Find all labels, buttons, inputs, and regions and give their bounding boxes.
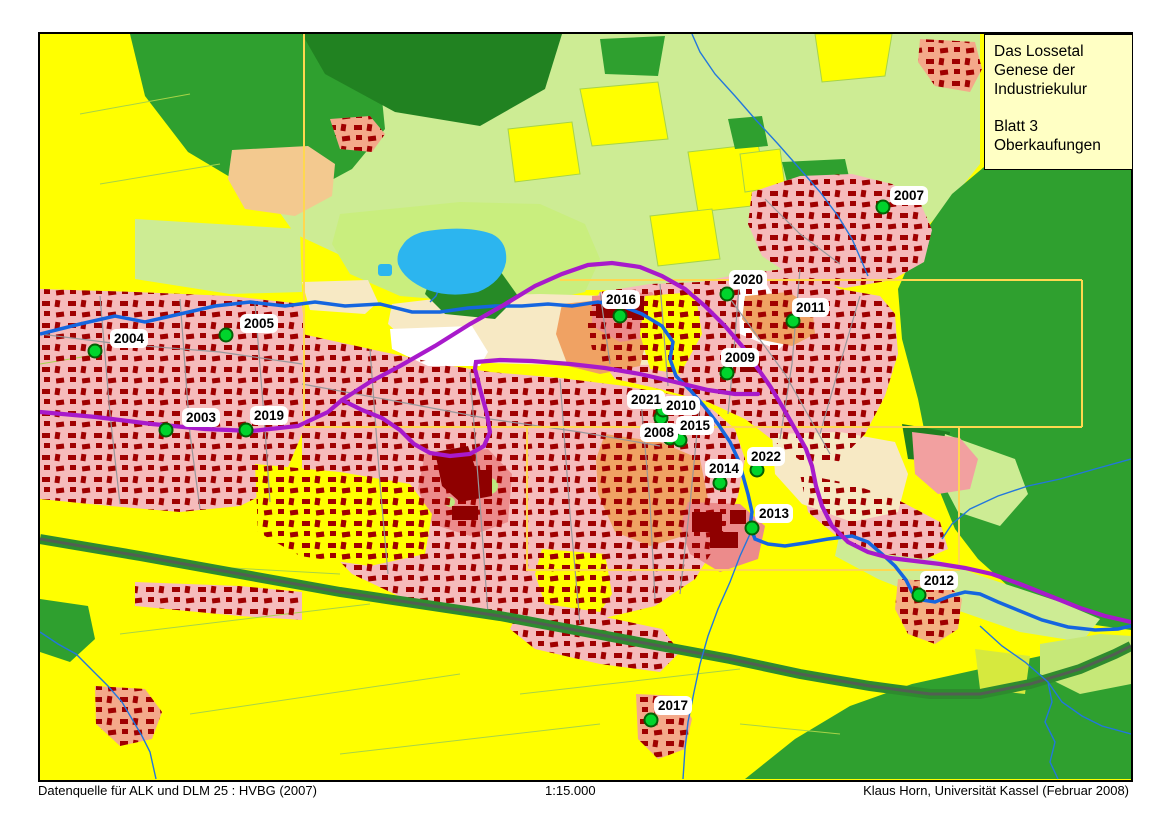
map-subtitle-1: Genese der <box>994 61 1126 80</box>
map-marker-label-2014: 2014 <box>705 459 743 478</box>
map-marker-label-2009: 2009 <box>721 348 759 367</box>
map-marker-label-2012: 2012 <box>920 571 958 590</box>
map-marker-label-2004: 2004 <box>110 329 148 348</box>
map-title: Das Lossetal <box>994 42 1126 61</box>
map-marker-dot-2005[interactable] <box>219 328 234 343</box>
page: 2003200420052007200820092010201120122013… <box>0 0 1169 827</box>
title-spacer <box>994 99 1126 117</box>
map-marker-dot-2009[interactable] <box>720 366 735 381</box>
map-marker-label-2022: 2022 <box>747 447 785 466</box>
map-subtitle-2: Industriekulur <box>994 80 1126 99</box>
sheet-name: Oberkaufungen <box>994 136 1126 155</box>
map-marker-dot-2019[interactable] <box>239 423 254 438</box>
map-marker-dot-2016[interactable] <box>613 309 628 324</box>
map-marker-dot-2004[interactable] <box>88 344 103 359</box>
map-marker-label-2016: 2016 <box>602 290 640 309</box>
map-marker-dot-2017[interactable] <box>644 713 659 728</box>
data-source-note: Datenquelle für ALK und DLM 25 : HVBG (2… <box>38 783 317 798</box>
map-marker-dot-2013[interactable] <box>745 521 760 536</box>
map-marker-label-2007: 2007 <box>890 186 928 205</box>
map-marker-dot-2020[interactable] <box>720 287 735 302</box>
map-marker-label-2003: 2003 <box>182 408 220 427</box>
map-marker-label-2021: 2021 <box>627 390 665 409</box>
map-canvas <box>40 34 1131 780</box>
map-title-box: Das Lossetal Genese der Industriekulur B… <box>984 34 1133 170</box>
map-marker-label-2019: 2019 <box>250 406 288 425</box>
map-marker-label-2015: 2015 <box>676 416 714 435</box>
map-marker-label-2013: 2013 <box>755 504 793 523</box>
map-marker-label-2005: 2005 <box>240 314 278 333</box>
map-marker-label-2010: 2010 <box>662 396 700 415</box>
map-scale: 1:15.000 <box>545 783 596 798</box>
map-marker-label-2008: 2008 <box>640 423 678 442</box>
map-footer: Datenquelle für ALK und DLM 25 : HVBG (2… <box>0 783 1169 803</box>
author-credit: Klaus Horn, Universität Kassel (Februar … <box>863 783 1129 798</box>
map-marker-label-2017: 2017 <box>654 696 692 715</box>
map-marker-label-2020: 2020 <box>729 270 767 289</box>
land-use-map[interactable]: 2003200420052007200820092010201120122013… <box>38 32 1133 782</box>
map-marker-dot-2003[interactable] <box>159 423 174 438</box>
sheet-number: Blatt 3 <box>994 117 1126 136</box>
map-marker-dot-2007[interactable] <box>876 200 891 215</box>
map-marker-label-2011: 2011 <box>792 298 829 317</box>
